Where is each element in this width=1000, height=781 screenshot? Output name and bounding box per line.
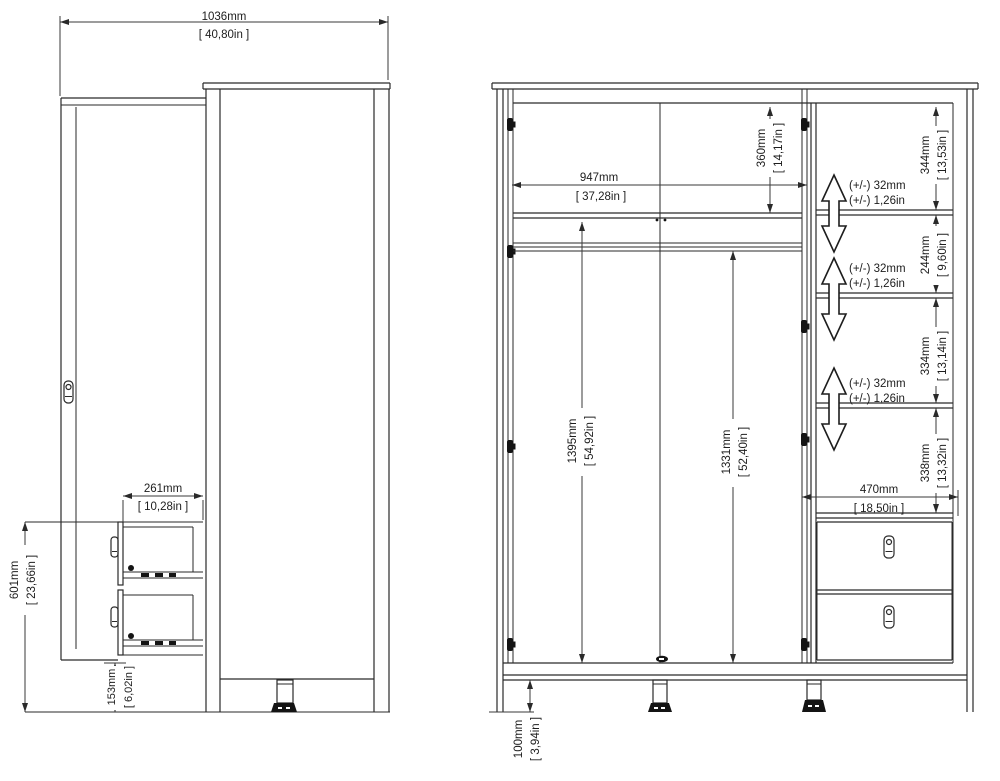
dim-arrow-icon — [933, 298, 939, 307]
leg-foot — [648, 703, 672, 712]
hinge-icon — [507, 245, 513, 258]
leg-foot-highlight — [278, 707, 282, 709]
leg-foot-highlight — [661, 707, 665, 709]
hinge-icon — [807, 642, 810, 648]
drawer-column — [817, 522, 952, 660]
rail-mark — [155, 573, 163, 577]
shelf-adjust-arrow-icon — [822, 258, 846, 340]
hinge-icon — [507, 118, 513, 131]
front-frame — [492, 83, 978, 712]
adjust-text-in: (+/-) 1,26in — [849, 393, 905, 405]
hinge-icon — [507, 440, 513, 453]
dim-arrow-icon — [933, 394, 939, 403]
front-view — [492, 83, 978, 712]
adjust-text-in: (+/-) 1,26in — [849, 195, 905, 207]
dim-text-mm: 344mm — [920, 136, 932, 174]
drawer-roller-icon — [128, 565, 134, 571]
side-body — [25, 83, 390, 712]
dim-text-mm: 338mm — [920, 444, 932, 482]
hinge-icon — [513, 642, 516, 648]
dim-text-in: [ 13,32in ] — [937, 438, 949, 489]
dim-text-in: [ 54,92in ] — [584, 416, 596, 467]
leg-foot-highlight — [815, 705, 819, 707]
dim-text-mm: 153mm — [106, 669, 118, 706]
dim-arrow-icon — [22, 522, 28, 531]
dim-arrow-icon — [194, 493, 203, 499]
shelf-pin-icon — [664, 219, 667, 222]
handle-knob — [887, 540, 892, 545]
dim-text-in: [ 14,17in ] — [773, 123, 785, 174]
leg-foot-highlight — [286, 707, 290, 709]
dim-text-mm: 100mm — [513, 720, 525, 758]
dim-text-mm: 1395mm — [567, 419, 579, 464]
leg-foot-highlight — [808, 705, 812, 707]
side-open-door — [61, 98, 206, 660]
drawer-handle-icon — [111, 537, 118, 557]
dim-text-in: [ 13,14in ] — [937, 331, 949, 382]
front-legs — [648, 680, 826, 712]
rail-mark — [169, 573, 176, 577]
dimension-lines — [22, 16, 958, 712]
drawer-handle-icon — [111, 607, 118, 627]
dim-arrow-icon — [933, 504, 939, 513]
dim-text-mm: 1036mm — [202, 11, 247, 23]
left-door-edge — [507, 89, 516, 663]
rail-mark — [141, 641, 149, 645]
dim-text-in: [ 23,66in ] — [26, 555, 38, 606]
dim-text-mm: 261mm — [144, 483, 182, 495]
drawer-handle-icon — [884, 536, 894, 558]
dim-arrow-icon — [933, 107, 939, 116]
dim-text-in: [ 10,28in ] — [138, 501, 189, 513]
leg-body — [807, 680, 821, 700]
dim-arrow-icon — [60, 19, 69, 25]
dim-text-in: [ 40,80in ] — [199, 29, 250, 41]
shelf-adjust-arrow-icon — [822, 175, 846, 252]
dim-text-in: [ 52,40in ] — [738, 427, 750, 478]
door-handle-icon — [64, 381, 73, 403]
text-masks — [6, 119, 951, 710]
dim-text-in: [ 3,94in ] — [530, 717, 542, 761]
drawer-roller-icon — [128, 633, 134, 639]
shelf-adjust-arrows — [822, 175, 846, 450]
dim-arrow-icon — [933, 284, 939, 293]
dim-arrow-icon — [527, 703, 533, 712]
dim-text-in: [ 9,60in ] — [937, 233, 949, 277]
technical-drawing-canvas: 1036mm [ 40,80in ] 261mm [ 10,28in ] 601… — [0, 0, 1000, 781]
dim-text-in: [ 18,50in ] — [854, 503, 905, 515]
handle-knob — [66, 385, 71, 390]
hinge-icon — [507, 638, 513, 651]
drawer-handle-icon — [884, 606, 894, 628]
glide-highlight — [659, 658, 664, 660]
leg-body — [277, 680, 293, 703]
dim-text-mm: 244mm — [920, 236, 932, 274]
hanging-section — [513, 103, 802, 663]
hinge-icon — [513, 122, 516, 128]
dim-arrow-icon — [123, 493, 132, 499]
dim-text-in: [ 6,02in ] — [123, 666, 135, 708]
rail-mark — [155, 641, 163, 645]
hinge-icon — [801, 638, 807, 651]
dim-arrow-icon — [730, 654, 736, 663]
hinge-icon — [801, 118, 807, 131]
side-drawer-unit — [25, 522, 203, 655]
dim-arrow-icon — [527, 680, 533, 689]
dim-text-mm: 470mm — [860, 484, 898, 496]
dim-text-in: [ 13,53in ] — [937, 130, 949, 181]
leg-foot-highlight — [654, 707, 658, 709]
dim-text-mm: 947mm — [580, 172, 618, 184]
dim-arrow-icon — [579, 654, 585, 663]
rail-mark — [169, 641, 176, 645]
dim-text-mm: 601mm — [9, 561, 21, 599]
leg-foot — [271, 703, 297, 712]
drawer-front — [118, 590, 123, 655]
rail-mark — [141, 573, 149, 577]
hinge-icon — [807, 437, 810, 443]
dim-arrow-icon — [730, 251, 736, 260]
dim-arrow-icon — [767, 107, 773, 116]
hinge-icon — [807, 122, 810, 128]
leg-foot — [802, 700, 826, 712]
hinge-icon — [513, 444, 516, 450]
dim-text-mm: 334mm — [920, 337, 932, 375]
adjust-text-mm: (+/-) 32mm — [849, 180, 906, 192]
dim-arrow-icon — [379, 19, 388, 25]
adjust-text-mm: (+/-) 32mm — [849, 263, 906, 275]
side-view — [25, 83, 390, 712]
hinge-icon — [801, 320, 807, 333]
dim-text-mm: 1331mm — [721, 430, 733, 475]
dim-arrow-icon — [579, 222, 585, 231]
shelf-pin-icon — [656, 219, 659, 222]
leg-body — [653, 680, 667, 703]
leg — [271, 680, 297, 712]
wardrobe-drawing: 1036mm [ 40,80in ] 261mm [ 10,28in ] 601… — [0, 0, 1000, 781]
shelf-adjust-arrow-icon — [822, 368, 846, 450]
hinge-icon — [801, 433, 807, 446]
drawer-front — [118, 522, 123, 585]
handle-knob — [887, 610, 892, 615]
hinge-icon — [807, 324, 810, 330]
dim-arrow-icon — [22, 703, 28, 712]
dim-text-in: [ 37,28in ] — [576, 191, 627, 203]
divider-and-right-door-edge — [801, 89, 816, 663]
dim-arrow-icon — [767, 204, 773, 213]
adjust-text-mm: (+/-) 32mm — [849, 378, 906, 390]
dim-arrow-icon — [933, 408, 939, 417]
dim-arrow-icon — [933, 201, 939, 210]
dim-arrow-icon — [933, 215, 939, 224]
dim-text-mm: 360mm — [756, 129, 768, 167]
adjust-text-in: (+/-) 1,26in — [849, 278, 905, 290]
